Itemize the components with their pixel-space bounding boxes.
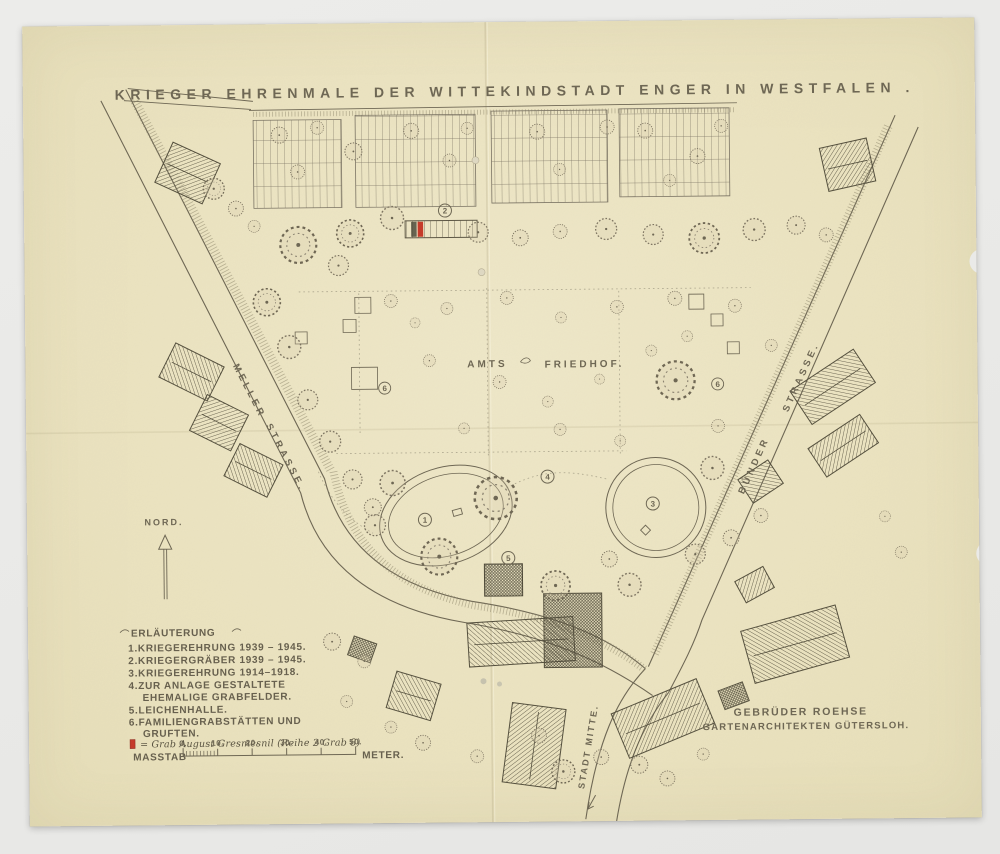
svg-text:40.: 40. [315, 738, 328, 747]
credit-line2: GARTENARCHITEKTEN GÜTERSLOH. [703, 720, 910, 733]
svg-text:6: 6 [382, 384, 387, 393]
scale-unit: METER. [362, 750, 404, 761]
svg-text:5: 5 [506, 554, 511, 563]
war-grave-row [405, 220, 477, 238]
site-plan-drawing: KRIEGER EHRENMALE DER WITTEKINDSTADT ENG… [22, 17, 982, 826]
map-sheet: KRIEGER EHRENMALE DER WITTEKINDSTADT ENG… [22, 17, 982, 826]
svg-text:0.: 0. [179, 739, 187, 748]
grave-fields-group [253, 108, 730, 209]
svg-text:3: 3 [651, 500, 656, 509]
red-grave-marker [418, 222, 424, 237]
svg-text:30.: 30. [280, 738, 293, 747]
legend-item: EHEMALIGE GRABFELDER. [143, 692, 292, 704]
legend-item: 3.KRIEGEREHRUNG 1914–1918. [128, 667, 299, 680]
legend-item: 5.LEICHENHALLE. [129, 705, 228, 717]
north-label: NORD. [144, 517, 183, 527]
svg-text:6: 6 [715, 380, 720, 389]
scale-label: MASSTAB [133, 752, 187, 764]
scanner-background: KRIEGER EHRENMALE DER WITTEKINDSTADT ENG… [0, 0, 1000, 854]
legend-item: 4.ZUR ANLAGE GESTALTETE [128, 680, 285, 693]
legend-red-square-icon [130, 740, 135, 749]
credit-line1: GEBRÜDER ROEHSE [734, 705, 868, 719]
svg-text:20.: 20. [246, 738, 259, 747]
svg-text:2: 2 [443, 207, 448, 216]
svg-text:4: 4 [545, 473, 550, 482]
cemetery-label-amts: AMTS [467, 359, 507, 370]
cemetery-label-friedhof: FRIEDHOF. [545, 359, 625, 371]
legend-heading: ERLÄUTERUNG [131, 626, 215, 640]
legend-item: 1.KRIEGEREHRUNG 1939 – 1945. [128, 642, 306, 655]
svg-text:10.: 10. [211, 739, 224, 748]
svg-text:1: 1 [423, 516, 428, 525]
svg-text:50.: 50. [349, 737, 362, 746]
